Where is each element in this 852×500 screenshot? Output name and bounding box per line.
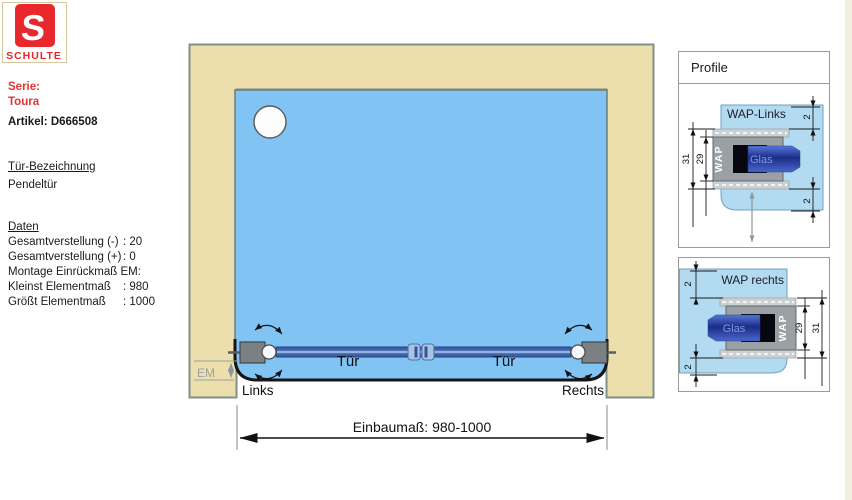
shower-head-icon (254, 106, 286, 138)
wap-links-title: WAP-Links (727, 107, 786, 121)
dim-29-label: 29 (695, 154, 706, 165)
data-row-label: Gesamtverstellung (+) (8, 251, 123, 263)
data-row: Größt Elementmaß: 1000 (8, 296, 155, 308)
wap-label: WAP (713, 146, 725, 173)
wap-rechts-title: WAP rechts (721, 273, 784, 287)
hinge-pivot-left (262, 345, 276, 359)
window-edge-strip (845, 0, 852, 500)
serie-label: Serie: (8, 81, 40, 93)
data-row-value: : 0 (123, 251, 136, 263)
wap-label: WAP (777, 315, 789, 342)
dim-2-top-label: 2 (683, 281, 694, 286)
wall-profile-left (240, 342, 265, 363)
wap-rechts-section: WAP rechts Glas WAP 2 (678, 257, 830, 392)
data-row-value: : 20 (123, 236, 142, 248)
wap-links-drawing: WAP-Links Glas WAP 31 (679, 84, 829, 247)
glass-panel (235, 90, 607, 380)
hinge-pivot-right (571, 345, 585, 359)
door-label-left: Tür (337, 353, 360, 370)
data-row: Kleinst Elementmaß: 980 (8, 281, 149, 293)
dim-31 (688, 122, 715, 227)
dim-31-label: 31 (681, 154, 692, 165)
einbaumass-dimension: Einbaumaß: 980-1000 (237, 405, 607, 450)
center-seal-right (422, 344, 434, 360)
center-seal-lip-right (425, 347, 428, 358)
hinge-side-right-label: Rechts (562, 383, 604, 398)
wap-links-section: WAP-Links Glas WAP 31 (678, 83, 830, 248)
dim-2-top-label: 2 (802, 114, 813, 119)
logo-brand-name: SCHULTE (6, 50, 62, 62)
door-installation-drawing: EM Tür Tür Links Rechts Einbaumaß: 980-1… (188, 43, 655, 463)
einbaumass-label: Einbaumaß: 980-1000 (353, 419, 492, 435)
profile-panel-header: Profile (678, 51, 830, 84)
data-row-value: : 1000 (123, 296, 155, 308)
dim-29 (700, 130, 713, 216)
data-row-label: Montage Einrückmaß EM: (8, 266, 123, 278)
wap-rechts-drawing: WAP rechts Glas WAP 2 (679, 258, 829, 391)
serie-value: Toura (8, 96, 39, 108)
center-seal-lip-left (415, 347, 418, 358)
dim-29 (797, 298, 810, 379)
data-row: Gesamtverstellung (+): 0 (8, 251, 136, 263)
data-row: Gesamtverstellung (-): 20 (8, 236, 142, 248)
data-row: Montage Einrückmaß EM: (8, 266, 123, 278)
logo-s-letter: S (20, 7, 47, 48)
dim-2-bottom-label: 2 (683, 364, 694, 369)
em-label: EM (197, 366, 215, 380)
schulte-logo-graphic: S SCHULTE (3, 3, 66, 62)
artikel-number: Artikel: D666508 (8, 116, 98, 128)
dim-2-bottom-label: 2 (802, 198, 813, 203)
door-designation-heading: Tür-Bezeichnung (8, 161, 96, 173)
data-row-label: Gesamtverstellung (-) (8, 236, 123, 248)
door-type: Pendeltür (8, 179, 57, 191)
wall-profile-right (582, 342, 607, 363)
door-label-right: Tür (493, 353, 516, 370)
dim-31-label: 31 (811, 323, 822, 334)
dim-29-label: 29 (794, 323, 805, 334)
center-seal-left (408, 344, 420, 360)
dim-31 (797, 290, 827, 386)
data-row-label: Kleinst Elementmaß (8, 281, 123, 293)
glas-label: Glas (723, 323, 746, 335)
schulte-drawing-window: S SCHULTE Serie: Toura Artikel: D666508 … (0, 0, 852, 500)
data-row-value: : 980 (123, 281, 149, 293)
data-heading: Daten (8, 221, 39, 233)
profile-panel-title: Profile (691, 60, 728, 75)
data-row-label: Größt Elementmaß (8, 296, 123, 308)
schulte-logo: S SCHULTE (2, 2, 67, 63)
glas-label: Glas (750, 154, 773, 166)
hinge-side-left-label: Links (242, 383, 274, 398)
